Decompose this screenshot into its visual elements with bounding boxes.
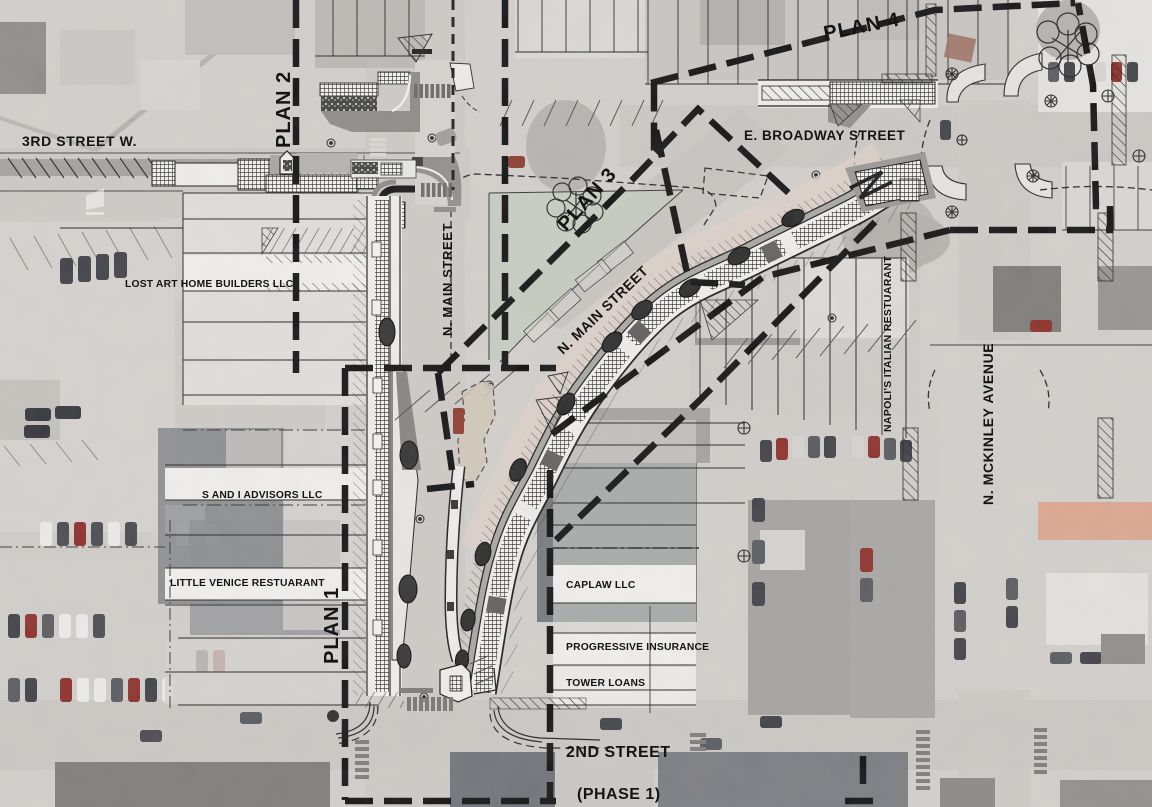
svg-text:NAPOLI'S ITALIAN RESTUARANT: NAPOLI'S ITALIAN RESTUARANT (882, 256, 894, 432)
svg-text:(PHASE 1): (PHASE 1) (577, 786, 661, 803)
svg-text:PLAN 1: PLAN 1 (321, 587, 343, 664)
svg-text:3RD STREET W.: 3RD STREET W. (22, 133, 137, 149)
svg-text:S AND I ADVISORS LLC: S AND I ADVISORS LLC (202, 490, 323, 501)
svg-text:PLAN 2: PLAN 2 (273, 71, 295, 148)
svg-text:LITTLE VENICE RESTUARANT: LITTLE VENICE RESTUARANT (170, 578, 325, 589)
svg-text:TOWER LOANS: TOWER LOANS (566, 678, 645, 689)
svg-text:E. BROADWAY STREET: E. BROADWAY STREET (744, 128, 906, 143)
svg-text:2ND STREET: 2ND STREET (566, 744, 671, 761)
svg-text:LOST ART HOME BUILDERS LLC: LOST ART HOME BUILDERS LLC (125, 279, 294, 290)
svg-text:PROGRESSIVE INSURANCE: PROGRESSIVE INSURANCE (566, 642, 709, 653)
svg-text:CAPLAW LLC: CAPLAW LLC (566, 580, 636, 591)
svg-text:N. MCKINLEY AVENUE: N. MCKINLEY AVENUE (980, 343, 996, 505)
svg-text:N. MAIN STREET: N. MAIN STREET (440, 223, 455, 336)
